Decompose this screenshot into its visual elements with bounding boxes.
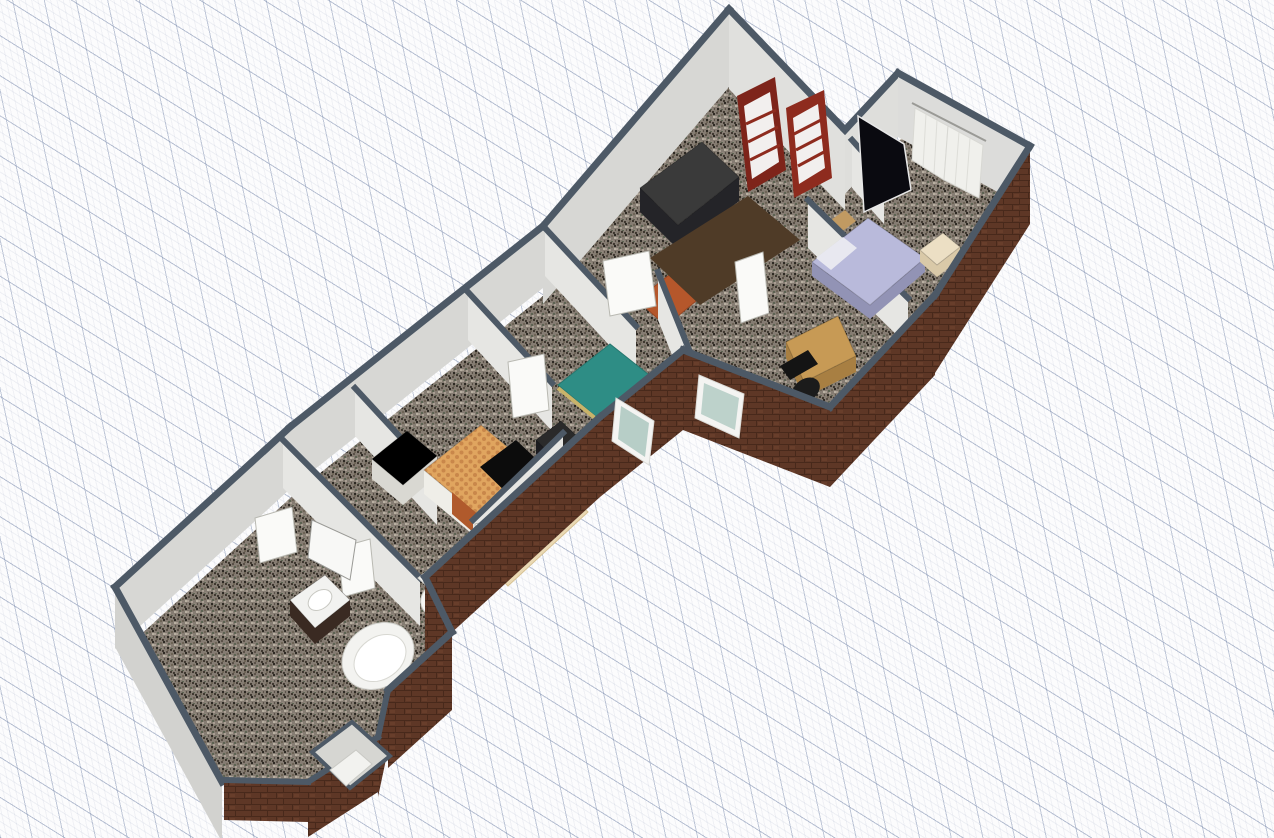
exterior-wall-tip-close-cap: [224, 780, 308, 782]
exterior-wall-tip-close-face: [224, 780, 308, 822]
door-midbedroom-panel: [508, 354, 549, 418]
door-office-panel: [735, 252, 769, 323]
design-canvas[interactable]: [0, 0, 1274, 838]
door-hall-panel: [603, 251, 656, 316]
floorplan-3d-view: [0, 0, 1274, 838]
